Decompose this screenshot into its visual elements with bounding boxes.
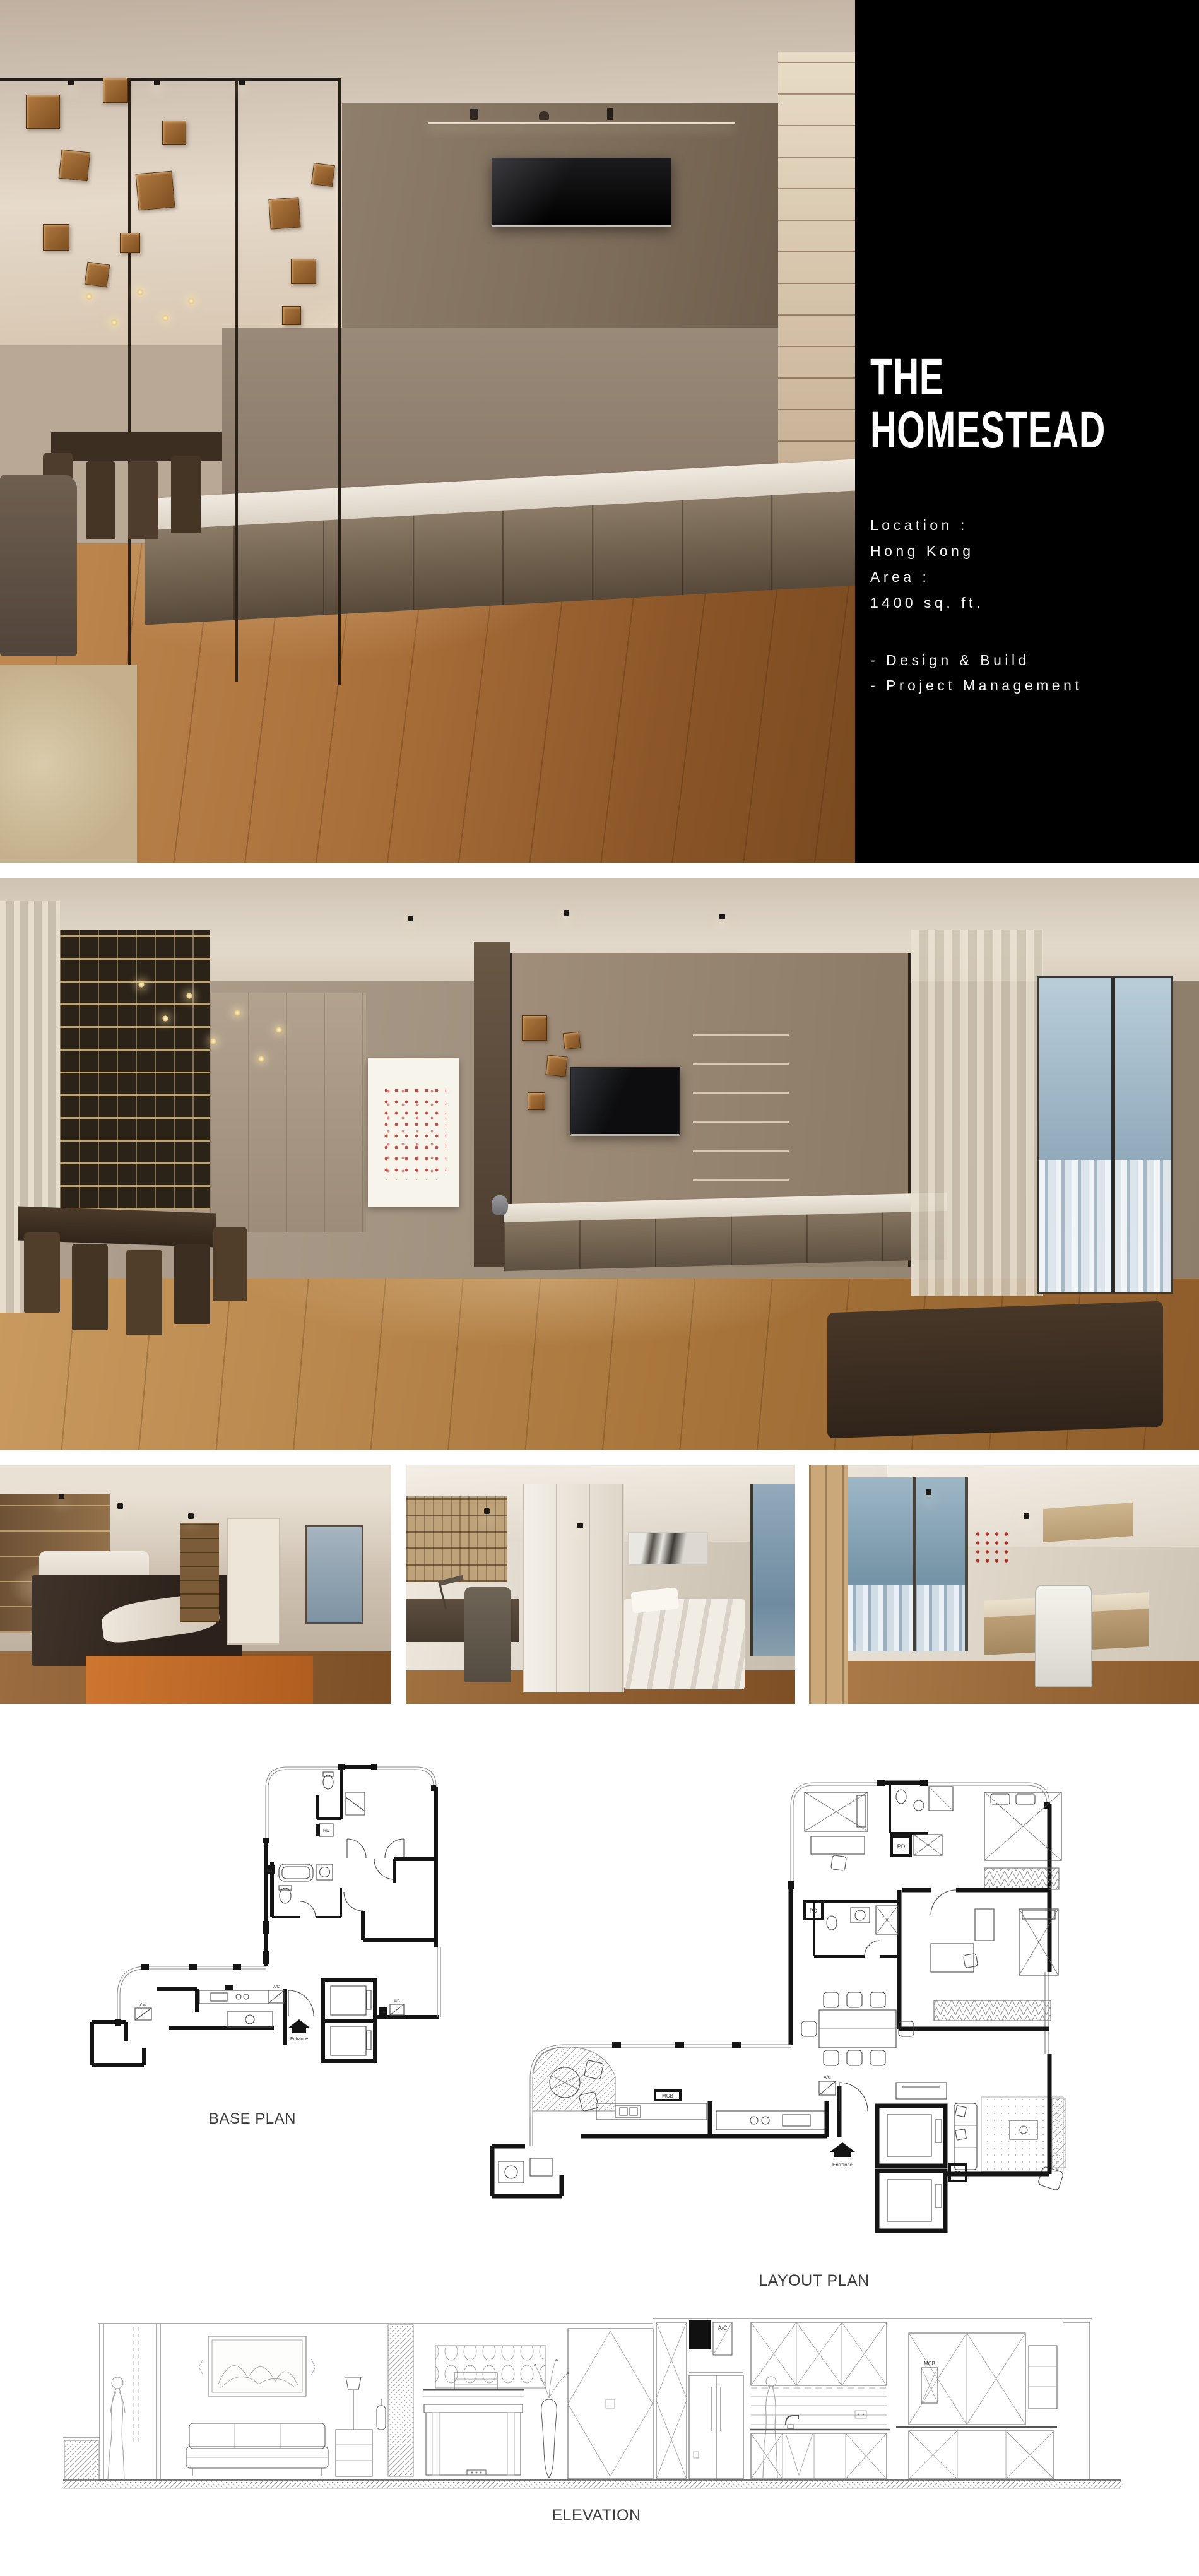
ottoman (827, 1301, 1163, 1438)
base-plan-drawing: RD RD (76, 1758, 448, 2067)
hanging-wood-cube (528, 1092, 545, 1110)
hanging-wood-cube (268, 198, 300, 230)
meta-area-value: 1400 sq. ft. (870, 590, 1199, 616)
ceiling-spotlight (59, 1494, 64, 1499)
pd-label: PD (897, 1843, 906, 1850)
ceiling-spotlight (484, 1508, 490, 1514)
hanging-wood-cube (522, 1015, 547, 1041)
base-plan-kitchen: CW (135, 1985, 274, 2028)
bookshelf-niche (180, 1523, 219, 1623)
pendant-light (137, 289, 143, 295)
hanging-wood-cube (120, 233, 140, 253)
project-title-line1: THE (870, 351, 1101, 404)
city-window (1037, 976, 1173, 1294)
layout-kitchen: MCB (581, 2091, 827, 2137)
window (750, 1484, 795, 1656)
window-mullion (913, 1477, 916, 1651)
pendant-light (138, 981, 145, 988)
window-frame-column (809, 1465, 848, 1704)
ceiling-spotlight (68, 80, 74, 85)
hanging-wood-cube (282, 306, 301, 325)
rd-label: RD (323, 1829, 329, 1833)
photo-dining-room (0, 878, 1199, 1450)
pendant-light (210, 1038, 216, 1044)
pendant-light (162, 1015, 168, 1022)
layout-bedroom2 (902, 1792, 1061, 1915)
hanging-wood-cube (135, 171, 175, 211)
entrance-label: Entrance (832, 2162, 853, 2168)
mirror (305, 1525, 364, 1624)
sheer-curtain (911, 930, 1043, 1295)
shelf-object (607, 108, 613, 120)
ac-void (689, 2320, 711, 2349)
dot-artwork-pattern (381, 1085, 447, 1180)
curved-city-window (848, 1477, 968, 1651)
elevation-drawing: A/C MCB (63, 2317, 1130, 2494)
layout-store-room (492, 2146, 562, 2196)
hanging-wood-cube (291, 259, 316, 284)
hanging-wood-cube (162, 121, 186, 145)
rd-label: RD (267, 1869, 273, 1873)
elevation-sofa (186, 2423, 328, 2476)
project-services: - Design & Build - Project Management (870, 647, 1199, 698)
dining-chair-silhouette (24, 1232, 60, 1313)
hanging-wood-cube (563, 1032, 581, 1050)
ac-label: A/C (824, 2076, 831, 2080)
pendant-light (258, 1056, 264, 1062)
hanging-wood-cube (26, 95, 60, 129)
ac-label: A/C (718, 2325, 728, 2331)
ceiling-spotlight (1024, 1513, 1029, 1519)
dining-chair-silhouette (128, 461, 158, 539)
dining-chair-silhouette (174, 1244, 210, 1324)
base-plan-label: BASE PLAN (63, 2110, 442, 2128)
entrance-label: Entrance (290, 2037, 308, 2041)
shelf-above-tv (428, 122, 736, 124)
dot-artwork (368, 1058, 459, 1207)
portfolio-page: THE HOMESTEAD Location : Hong Kong Area … (0, 0, 1199, 2576)
ceiling-spotlight (577, 1523, 583, 1528)
hanging-wood-cube (546, 1055, 568, 1077)
dining-back-panel (210, 993, 366, 1232)
base-plan-store-room (92, 2022, 144, 2065)
layout-dining (801, 1992, 914, 2065)
city-skyline (1039, 1160, 1171, 1292)
shelf-unit (693, 1027, 789, 1181)
upper-cabinet (1043, 1503, 1133, 1542)
meta-area-label: Area : (870, 564, 1199, 590)
base-plan-entrance: A/C Entrance (269, 1985, 314, 2045)
wall-shelves (406, 1496, 507, 1582)
meta-location-value: Hong Kong (870, 538, 1199, 564)
layout-bathroom2: PD (805, 1901, 899, 1956)
mcb-label: MCB (662, 2093, 673, 2099)
hanging-wood-cube (59, 150, 91, 182)
hanging-wood-cube (103, 78, 128, 103)
project-meta: Location : Hong Kong Area : 1400 sq. ft. (870, 512, 1199, 616)
elevation-side-cabinet (336, 2377, 386, 2476)
layout-bedroom3 (899, 1890, 1058, 2029)
armchair-silhouette (0, 475, 77, 656)
base-plan-bathroom-top: RD (316, 1767, 404, 1858)
hanging-wood-cube (311, 163, 335, 187)
hanging-wood-cube (43, 224, 69, 251)
pendant-light (234, 1010, 240, 1016)
office-chair (1035, 1585, 1092, 1687)
pendant-light (188, 298, 194, 304)
ceiling-spotlight (154, 80, 160, 85)
area-rug (0, 665, 137, 863)
elevation-kitchen: A/C MCB (656, 2320, 1090, 2480)
project-title: THE HOMESTEAD (870, 351, 1101, 457)
ceiling-spotlight (719, 914, 725, 919)
desk-chair (464, 1587, 511, 1682)
window-mullion (1111, 978, 1115, 1292)
layout-bedroom1 (805, 1792, 868, 1870)
project-title-line2: HOMESTEAD (870, 404, 1101, 457)
service-design-build: - Design & Build (870, 647, 1199, 673)
dining-chair-silhouette (171, 456, 201, 533)
ceiling-spotlight (408, 916, 413, 921)
bw-artwork (628, 1532, 708, 1566)
tv-screen (492, 158, 671, 227)
project-info-panel: THE HOMESTEAD Location : Hong Kong Area … (855, 0, 1199, 863)
photo-master-bedroom (0, 1465, 391, 1704)
pendant-light (186, 993, 192, 999)
ac-label: A/C (273, 1985, 280, 1989)
rd-label: RD (381, 2011, 386, 2014)
elevation-glass-wardrobe (568, 2329, 653, 2479)
ceiling-spotlight (117, 1503, 123, 1509)
entrance-arrow (288, 2019, 310, 2033)
elevation-piano (423, 2346, 546, 2475)
pendant-light (86, 293, 92, 300)
pendant-light (111, 319, 117, 326)
base-plan-elevators: RD A/C (323, 1947, 440, 2061)
ac-label: A/C (394, 2000, 401, 2004)
entrance-arrow (830, 2142, 855, 2157)
cw-label: CW (140, 2003, 148, 2007)
hanging-wood-cube (84, 262, 110, 288)
shelf-object (539, 111, 549, 120)
layout-plan-label: LAYOUT PLAN (625, 2272, 1003, 2290)
mcb-label: MCB (924, 2361, 935, 2366)
dining-chair-silhouette (213, 1227, 247, 1301)
elevation-person-1 (108, 2377, 125, 2479)
dining-chair-silhouette (86, 461, 115, 539)
layout-balcony (530, 2047, 615, 2146)
layout-bathroom1: PD (890, 1783, 953, 1855)
red-decor (973, 1530, 1008, 1563)
photo-living-room (0, 0, 855, 863)
owl-sculpture (492, 1195, 508, 1215)
service-project-management: - Project Management (870, 673, 1199, 698)
base-plan-master-bath: RD (263, 1862, 341, 1964)
wood-floor (809, 1661, 1199, 1704)
elevation-feature-wall (388, 2325, 413, 2476)
elevation-artwork (199, 2336, 315, 2396)
orange-rug (86, 1656, 313, 1704)
ceiling-spotlight (564, 910, 569, 916)
ceiling-spotlight (239, 80, 245, 85)
photo-study-bedroom (406, 1465, 795, 1704)
layout-elevators (877, 2106, 945, 2231)
floor-reflection (240, 1279, 839, 1347)
door (227, 1518, 281, 1645)
ceiling-spotlight (188, 1513, 194, 1519)
dining-chair-silhouette (72, 1244, 108, 1330)
wardrobe-column (523, 1484, 624, 1692)
tv-screen (570, 1067, 680, 1136)
partition-slat (128, 78, 131, 682)
pd-label: PD (810, 1908, 818, 1914)
layout-plan-drawing: PD PD (486, 1758, 1070, 2247)
photo-home-office (809, 1465, 1199, 1704)
elevation-label: ELEVATION (407, 2507, 786, 2525)
bookshelf-wall (60, 930, 210, 1209)
city-skyline (848, 1585, 965, 1651)
dining-chair-silhouette (126, 1250, 162, 1335)
partition-slat (235, 78, 238, 682)
base-plan-bedrooms-right (344, 1859, 436, 1940)
pillow (631, 1587, 680, 1614)
ceiling-spotlight (926, 1489, 931, 1495)
meta-location-label: Location : (870, 512, 1199, 538)
shelf-object (470, 109, 478, 120)
